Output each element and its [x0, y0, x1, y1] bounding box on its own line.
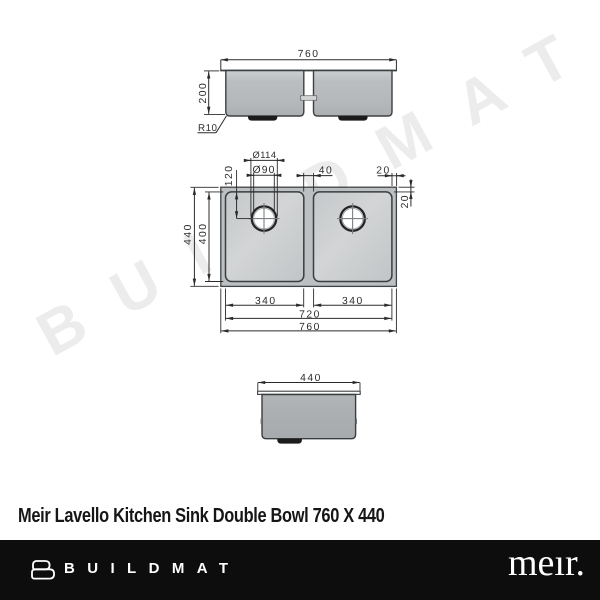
svg-text:200: 200: [198, 82, 209, 104]
svg-text:120: 120: [224, 165, 235, 187]
svg-text:400: 400: [198, 223, 209, 245]
svg-text:340: 340: [255, 296, 277, 307]
svg-text:Ø114: Ø114: [252, 150, 276, 160]
svg-text:20: 20: [400, 194, 411, 208]
svg-text:Ø90: Ø90: [253, 165, 276, 176]
svg-text:760: 760: [298, 49, 320, 60]
svg-text:720: 720: [299, 309, 321, 320]
svg-text:20: 20: [376, 165, 390, 176]
svg-text:440: 440: [300, 373, 322, 384]
svg-text:760: 760: [299, 322, 321, 333]
svg-text:340: 340: [342, 296, 364, 307]
svg-text:40: 40: [319, 165, 333, 176]
svg-text:440: 440: [183, 223, 194, 245]
